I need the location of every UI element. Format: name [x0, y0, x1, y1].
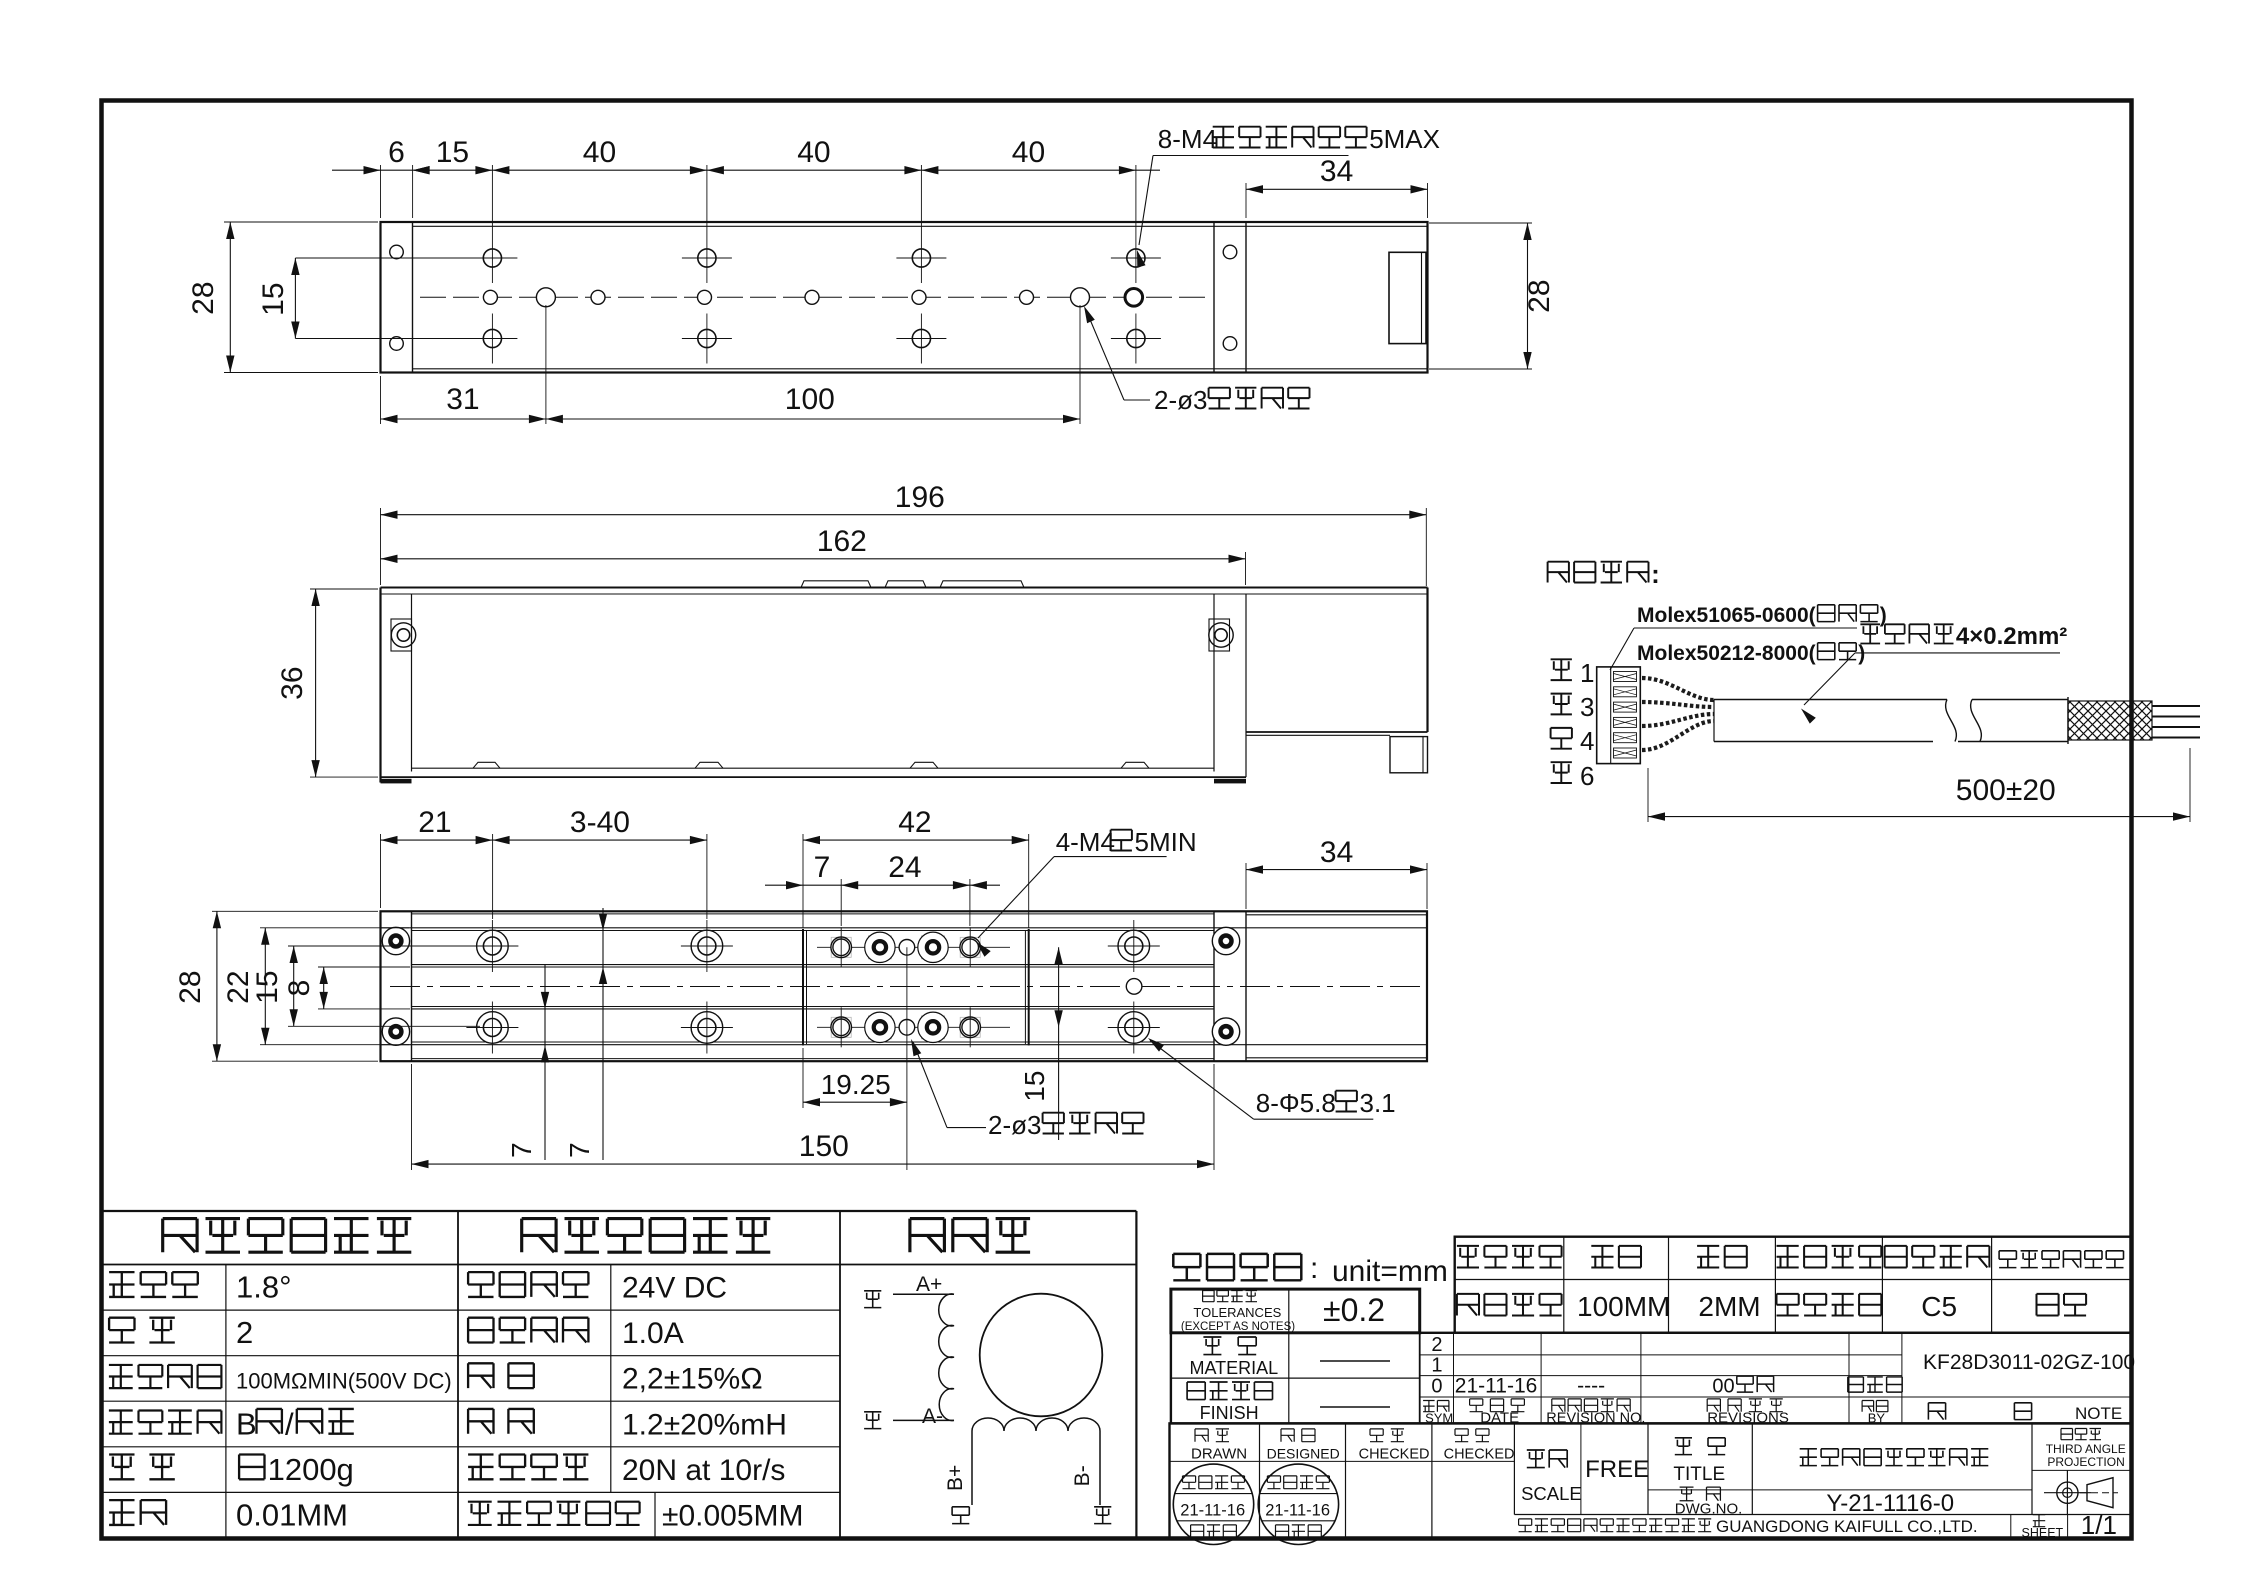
svg-text:TOLERANCES: TOLERANCES [1193, 1305, 1281, 1320]
svg-text:1.2±20%mH: 1.2±20%mH [622, 1408, 787, 1441]
svg-text:24: 24 [888, 851, 921, 884]
svg-text:15: 15 [436, 136, 469, 169]
svg-text:15: 15 [1019, 1071, 1050, 1102]
svg-text:B-: B- [1071, 1465, 1094, 1486]
svg-text::: : [1310, 1252, 1318, 1285]
svg-text:20N at 10r/s: 20N at 10r/s [622, 1454, 785, 1487]
svg-text:DWG.NO.: DWG.NO. [1675, 1501, 1743, 1518]
svg-text:28: 28 [187, 281, 220, 314]
svg-text:FREE: FREE [1585, 1456, 1649, 1483]
svg-text:5MAX: 5MAX [1369, 124, 1440, 154]
svg-text:7: 7 [564, 1142, 595, 1158]
svg-text:100MΩMIN(500V DC): 100MΩMIN(500V DC) [236, 1369, 452, 1394]
svg-text:1: 1 [1580, 658, 1594, 688]
svg-text:8: 8 [283, 980, 316, 997]
svg-text:DESIGNED: DESIGNED [1267, 1446, 1340, 1462]
svg-text:KF28D3011-02GZ-100: KF28D3011-02GZ-100 [1923, 1351, 2135, 1374]
svg-text:42: 42 [898, 806, 931, 839]
svg-text:7: 7 [814, 851, 831, 884]
svg-text:150: 150 [799, 1130, 849, 1163]
svg-text:8-M4: 8-M4 [1158, 124, 1217, 154]
svg-text:±0.005MM: ±0.005MM [662, 1500, 804, 1533]
svg-text:NOTE: NOTE [2075, 1404, 2122, 1423]
svg-text:3.1: 3.1 [1360, 1088, 1396, 1118]
svg-text:2MM: 2MM [1698, 1291, 1760, 1322]
svg-text:31: 31 [446, 383, 479, 416]
svg-text:): ) [1858, 642, 1865, 665]
svg-text:/: / [285, 1406, 294, 1441]
svg-text:2: 2 [236, 1315, 253, 1350]
svg-text:28: 28 [174, 970, 207, 1003]
svg-text:21-11-16: 21-11-16 [1180, 1502, 1245, 1520]
svg-text:GUANGDONG KAIFULL CO.,LTD.: GUANGDONG KAIFULL CO.,LTD. [1716, 1517, 1978, 1536]
svg-text:4×0.2mm²: 4×0.2mm² [1956, 623, 2067, 650]
svg-text:DRAWN: DRAWN [1191, 1446, 1247, 1463]
svg-text:Y-21-1116-0: Y-21-1116-0 [1826, 1490, 1954, 1517]
svg-text:6: 6 [1580, 761, 1594, 791]
svg-text:THIRD ANGLE: THIRD ANGLE [2046, 1442, 2126, 1456]
svg-text:40: 40 [583, 136, 616, 169]
svg-text:A+: A+ [916, 1273, 942, 1296]
svg-text:FINISH: FINISH [1200, 1403, 1259, 1423]
svg-text:0.01MM: 0.01MM [236, 1498, 348, 1533]
svg-text:1/1: 1/1 [2081, 1510, 2117, 1540]
svg-text:TITLE: TITLE [1673, 1464, 1725, 1485]
svg-text:1.8°: 1.8° [236, 1270, 292, 1305]
svg-text:100: 100 [785, 383, 835, 416]
svg-text:00: 00 [1712, 1376, 1734, 1398]
svg-text:2: 2 [1431, 1334, 1442, 1356]
svg-text:SCALE: SCALE [1521, 1483, 1582, 1504]
svg-text:1.0A: 1.0A [622, 1317, 684, 1350]
svg-text:PROJECTION: PROJECTION [2047, 1455, 2124, 1469]
svg-text:15: 15 [251, 970, 284, 1003]
svg-text:500±20: 500±20 [1956, 774, 2056, 807]
svg-text:162: 162 [817, 525, 867, 558]
svg-text:3: 3 [1580, 692, 1594, 722]
svg-text:3-40: 3-40 [570, 806, 630, 839]
svg-text:0: 0 [1431, 1376, 1442, 1398]
svg-text:34: 34 [1320, 155, 1353, 188]
svg-text:4: 4 [1580, 726, 1594, 756]
svg-text:B: B [236, 1406, 257, 1441]
svg-text:MATERIAL: MATERIAL [1190, 1358, 1279, 1378]
svg-text:21: 21 [418, 806, 451, 839]
svg-text:Molex51065-0600(: Molex51065-0600( [1637, 604, 1816, 627]
svg-text:19.25: 19.25 [821, 1069, 891, 1100]
svg-text:B+: B+ [944, 1465, 967, 1491]
svg-text:----: ---- [1577, 1375, 1605, 1398]
svg-text:4-M4: 4-M4 [1056, 827, 1115, 857]
svg-text:24V DC: 24V DC [622, 1272, 727, 1305]
svg-text:2-ø3: 2-ø3 [1154, 385, 1207, 415]
svg-text:8-Φ5.8: 8-Φ5.8 [1256, 1088, 1336, 1118]
svg-text:36: 36 [276, 666, 309, 699]
svg-text:1200g: 1200g [268, 1452, 354, 1487]
svg-text:CHECKED: CHECKED [1444, 1447, 1515, 1463]
svg-text:40: 40 [1012, 136, 1045, 169]
svg-text:2,2±15%Ω: 2,2±15%Ω [622, 1363, 763, 1396]
svg-text:100MM: 100MM [1577, 1291, 1670, 1322]
svg-text:40: 40 [797, 136, 830, 169]
svg-text:Molex50212-8000(: Molex50212-8000( [1637, 642, 1816, 665]
svg-text:6: 6 [388, 136, 405, 169]
svg-text:±0.2: ±0.2 [1323, 1292, 1385, 1328]
svg-text:196: 196 [895, 481, 945, 514]
svg-text:SHEET: SHEET [2022, 1526, 2064, 1540]
svg-text:1: 1 [1431, 1355, 1442, 1377]
svg-text:28: 28 [1523, 279, 1556, 312]
svg-text:unit=mm: unit=mm [1332, 1255, 1448, 1288]
svg-text:2-ø3: 2-ø3 [988, 1110, 1041, 1140]
svg-text:34: 34 [1320, 836, 1353, 869]
svg-text:21-11-16: 21-11-16 [1455, 1375, 1538, 1398]
svg-text::: : [1651, 559, 1660, 589]
svg-text:15: 15 [257, 282, 290, 315]
svg-text:5MIN: 5MIN [1135, 827, 1197, 857]
svg-text:21-11-16: 21-11-16 [1265, 1502, 1330, 1520]
svg-text:7: 7 [506, 1142, 537, 1158]
svg-text:(EXCEPT AS NOTES): (EXCEPT AS NOTES) [1181, 1321, 1295, 1333]
svg-text:C5: C5 [1921, 1291, 1957, 1322]
svg-text:CHECKED: CHECKED [1359, 1447, 1430, 1463]
